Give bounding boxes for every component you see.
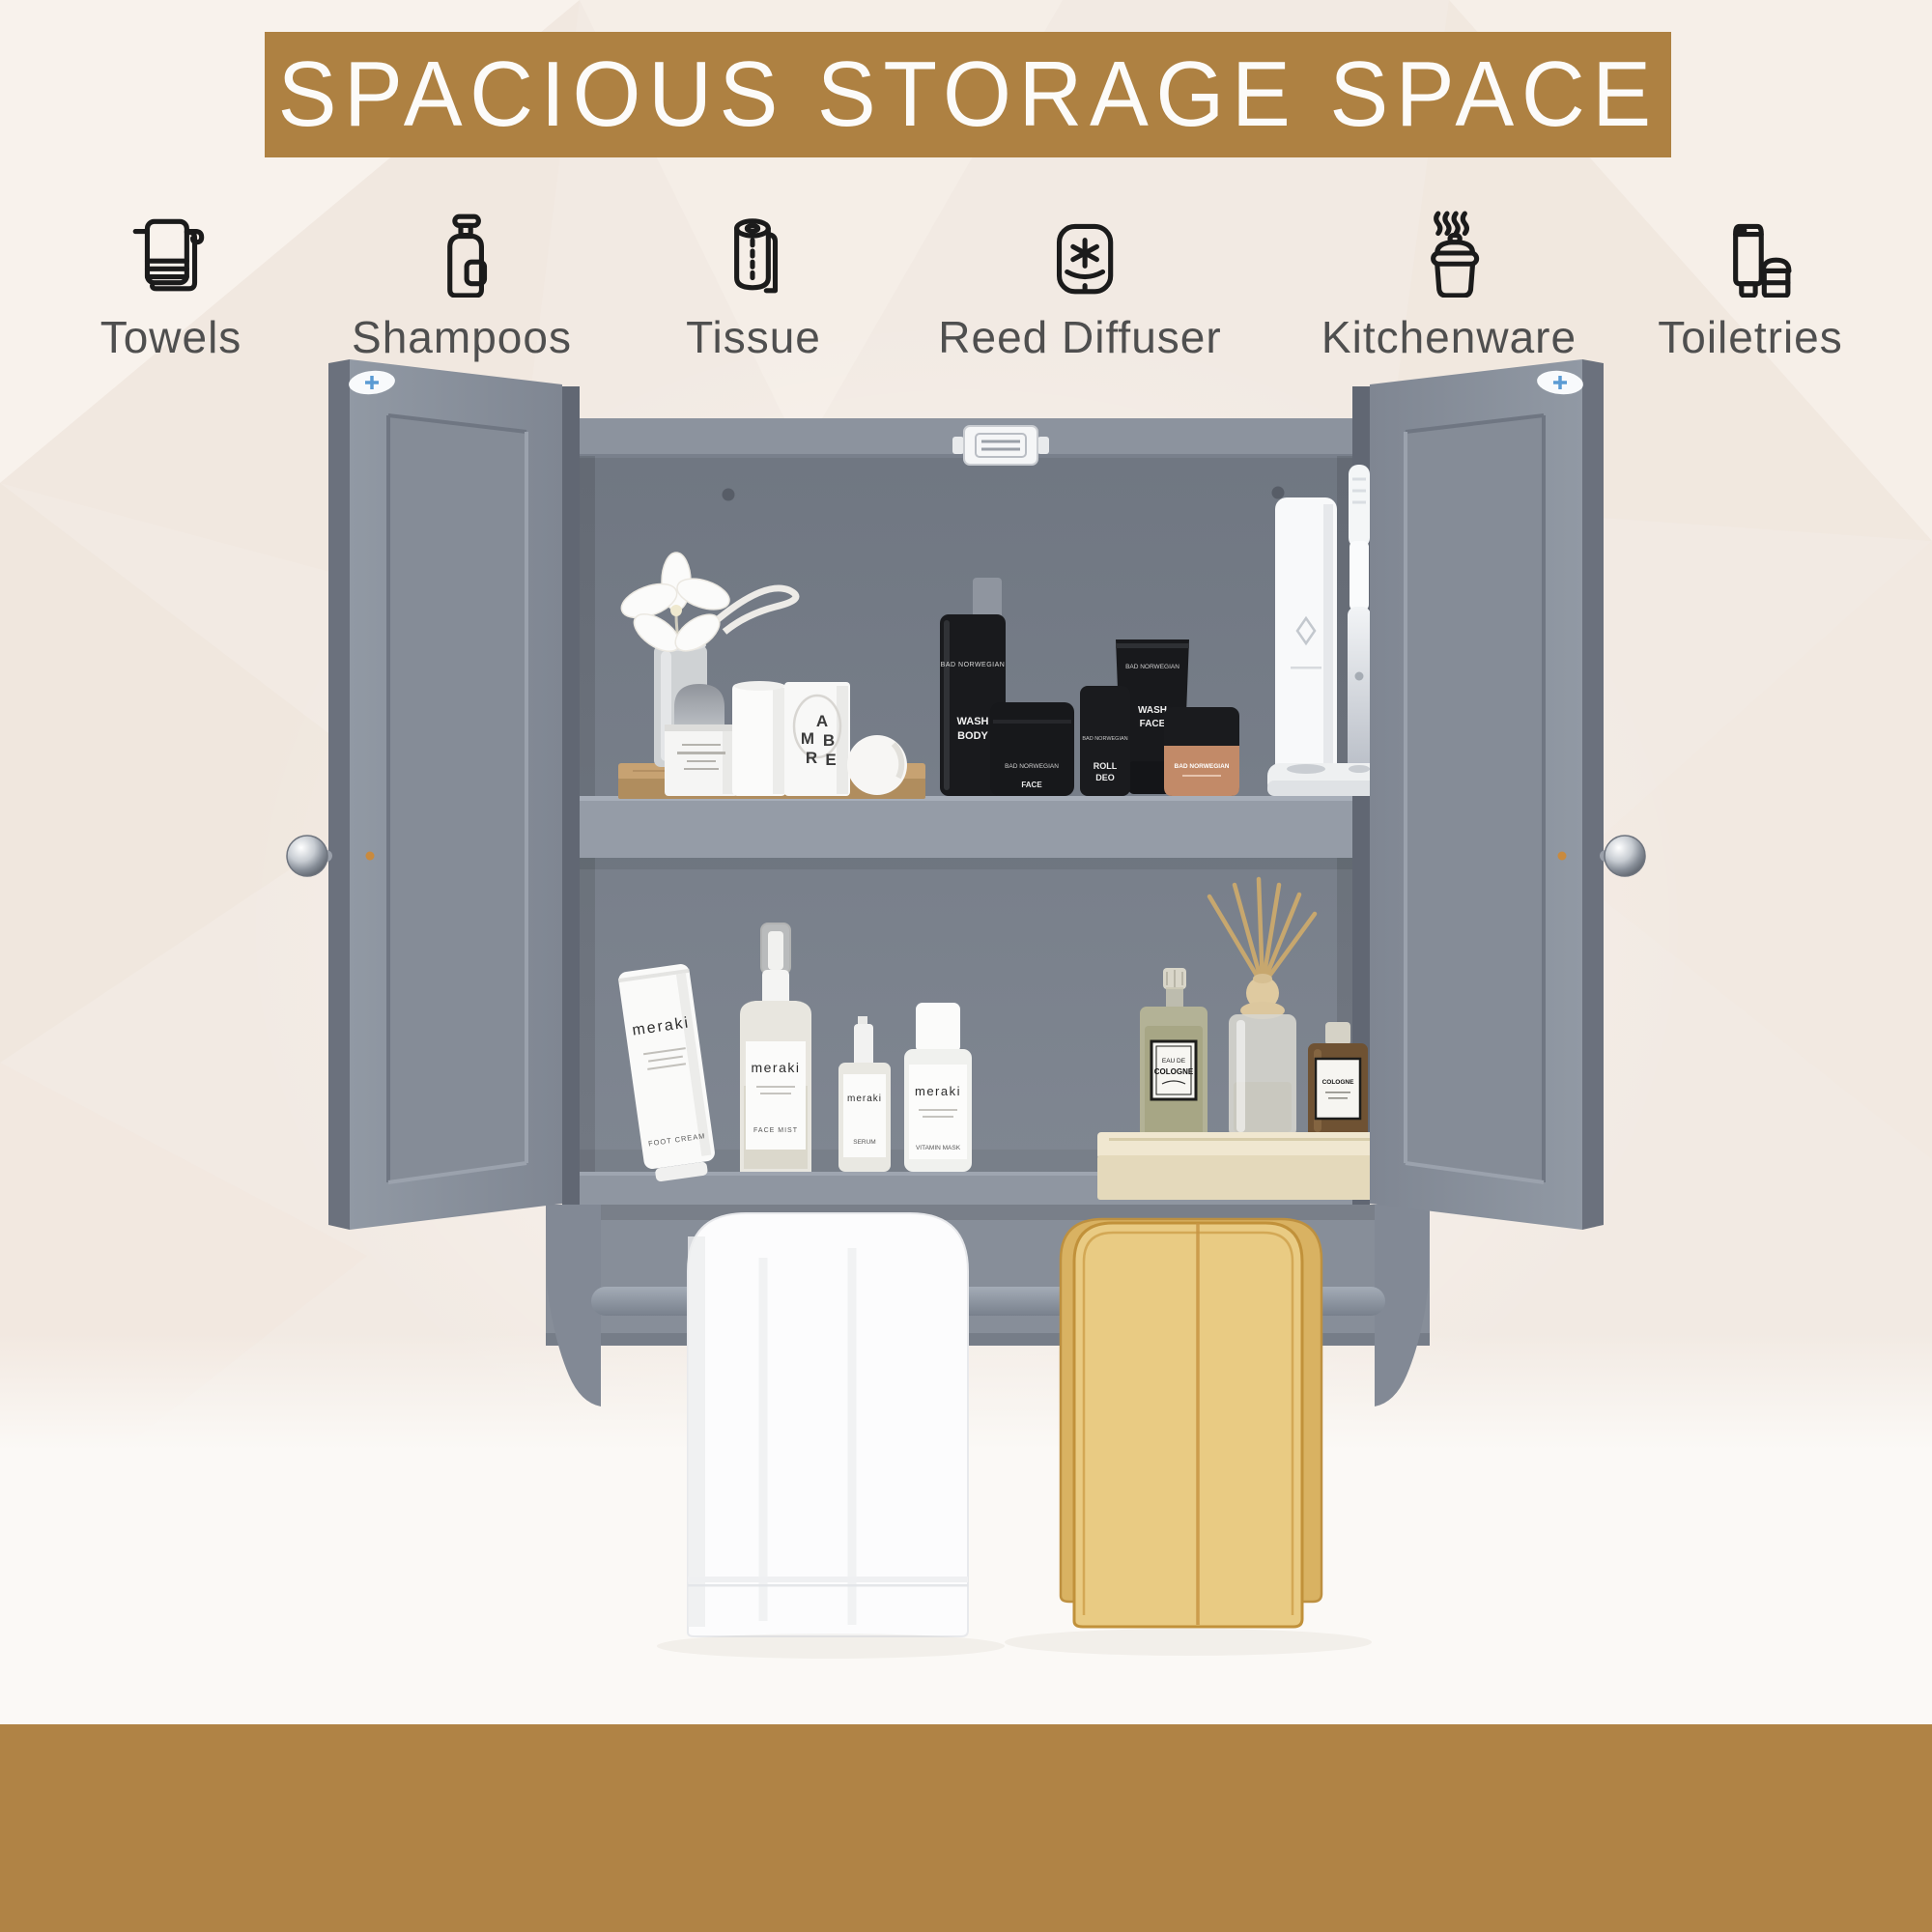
candle-letter: E (825, 751, 836, 769)
brand-label: BAD NORWEGIAN (1175, 763, 1230, 770)
white-towel (688, 1213, 968, 1636)
product-label: COLOGNE (1322, 1079, 1355, 1086)
yellow-towels (1061, 1219, 1321, 1627)
door-latch (952, 426, 1049, 465)
product-infographic: SPACIOUS STORAGE SPACE Towels Shampoos (0, 0, 1932, 1932)
product-label: SERUM (853, 1139, 875, 1146)
toothpaste-tube (1275, 497, 1337, 778)
perfume-jar (665, 724, 738, 796)
door-screw (1558, 852, 1567, 861)
product-label: DEO (1095, 773, 1115, 782)
left-door-gap (562, 386, 580, 1205)
brand-label: BAD NORWEGIAN (1082, 736, 1127, 742)
brand-label: meraki (751, 1060, 800, 1075)
face-jar: BAD NORWEGIAN FACE (990, 702, 1074, 796)
footer: Weight Capacity of Each Shelf: 11 lbs We… (0, 1724, 1932, 1932)
pillar-candle (732, 681, 786, 796)
towel-shadow (1005, 1629, 1372, 1656)
door-screw (366, 852, 375, 861)
candle-letter: A (816, 712, 828, 730)
product-label: EAU DE (1162, 1058, 1186, 1065)
right-door (1370, 359, 1645, 1230)
roll-deo-bottle: BAD NORWEGIAN ROLL DEO (1080, 686, 1130, 796)
product-label: FACE MIST (753, 1127, 798, 1134)
brand-label: meraki (847, 1094, 882, 1104)
tan-label-jar: BAD NORWEGIAN (1164, 707, 1239, 796)
brand-label: meraki (915, 1084, 961, 1098)
left-door (287, 359, 562, 1230)
candle-letter: B (823, 731, 835, 750)
brand-label: BAD NORWEGIAN (1005, 763, 1059, 770)
cabinet-product-photo: A M B R E BAD NORWEGIAN WASH BODY (0, 0, 1932, 1932)
perfume-cap (674, 684, 724, 727)
product-label: BODY (957, 730, 988, 742)
product-label: FACE (1021, 781, 1042, 789)
product-label: VITAMIN MASK (916, 1145, 961, 1151)
product-label: ROLL (1094, 761, 1118, 771)
candle-letter: R (806, 749, 817, 767)
wall-screw-hole (723, 489, 735, 501)
towel-shadow (657, 1634, 1005, 1659)
electric-toothbrush (1348, 465, 1371, 773)
product-label: WASH (1138, 705, 1167, 716)
middle-shelf (580, 796, 1352, 869)
product-label: WASH (957, 716, 989, 727)
wall-screw-hole (1272, 487, 1285, 499)
brand-label: BAD NORWEGIAN (1125, 664, 1179, 670)
product-label: FACE (1140, 719, 1166, 729)
candle-letter: M (801, 729, 814, 748)
brand-label: BAD NORWEGIAN (941, 662, 1006, 668)
ambre-candle: A M B R E (784, 682, 850, 796)
right-door-knob (1605, 836, 1645, 876)
left-door-knob (287, 836, 327, 876)
egg-case (847, 735, 907, 795)
product-label: COLOGNE (1154, 1067, 1194, 1076)
